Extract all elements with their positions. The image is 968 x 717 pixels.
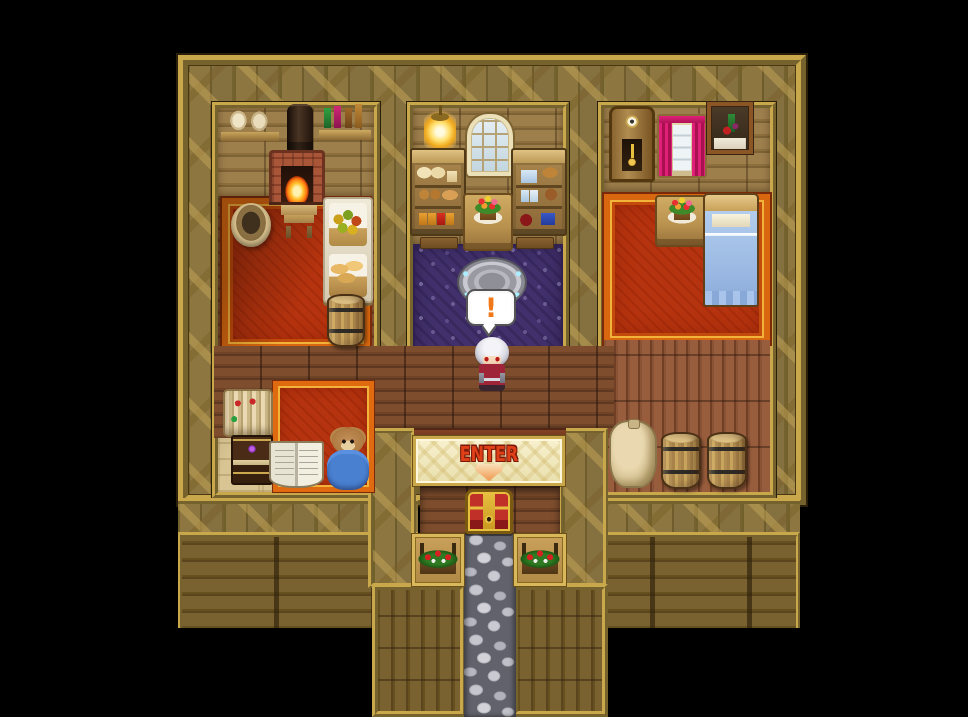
curtained-window (657, 114, 707, 178)
flower-table-center (463, 193, 513, 251)
fireplace-chimney (287, 104, 313, 152)
doormat-right (516, 237, 554, 249)
fireplace[interactable] (269, 150, 325, 202)
wall-shelf-bottles (319, 100, 371, 140)
bread-cupboard[interactable] (410, 148, 466, 236)
exclamation-icon: ! (466, 289, 516, 327)
game-viewport: ENTER ! (0, 0, 968, 717)
open-book[interactable] (269, 441, 324, 488)
scroll-pile[interactable] (223, 389, 273, 437)
arched-window (467, 114, 513, 176)
doormat-left (420, 237, 458, 249)
player-character[interactable] (472, 337, 512, 391)
flower-table-bedroom (655, 195, 709, 247)
exclamation-balloon[interactable]: ! (466, 289, 516, 335)
teddy-bear[interactable] (327, 428, 369, 490)
barrel-storage-room (327, 294, 365, 347)
book-stack[interactable] (231, 435, 273, 485)
barrel-right-1 (661, 432, 701, 489)
barrel-right-2 (707, 432, 747, 489)
grandfather-clock[interactable] (609, 106, 655, 182)
treasure-chest[interactable] (465, 489, 513, 534)
produce-basket-stand[interactable] (323, 197, 373, 303)
bed[interactable] (703, 193, 759, 307)
wall-shelf-sacks (221, 103, 279, 141)
flower-box-right (514, 534, 566, 586)
small-bench (281, 205, 317, 238)
wooden-tub (231, 203, 271, 247)
hanging-lamp (424, 105, 456, 151)
still-life-painting (707, 102, 753, 154)
jar-cupboard[interactable] (511, 148, 567, 236)
flower-box-left (412, 534, 464, 586)
items-layer (0, 0, 968, 717)
grain-sack (609, 420, 657, 488)
